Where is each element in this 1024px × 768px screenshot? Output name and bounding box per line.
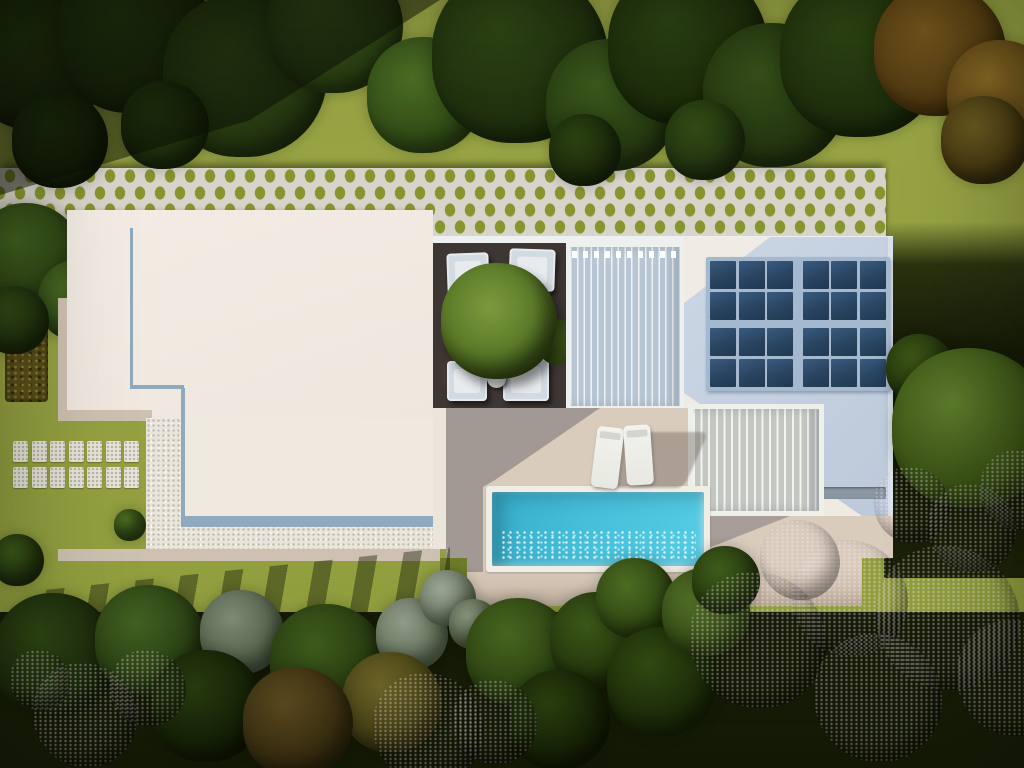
- pool-water: [492, 492, 704, 566]
- stepping-stone: [50, 441, 65, 462]
- solar-panel: [739, 359, 765, 387]
- tree: [665, 100, 745, 180]
- pool-sparkle: [500, 530, 696, 561]
- solar-panel: [860, 261, 886, 289]
- solar-panel: [767, 292, 793, 320]
- stepping-stone: [69, 441, 84, 462]
- solar-panel: [739, 292, 765, 320]
- gravel-band-horizontal: [146, 527, 436, 549]
- solar-panel: [739, 328, 765, 356]
- stepping-stone: [87, 467, 102, 488]
- flowering-tree: [110, 650, 186, 726]
- solar-panel: [767, 328, 793, 356]
- stepping-stone: [32, 441, 47, 462]
- solar-panel: [860, 328, 886, 356]
- left-edge-path: [58, 298, 67, 418]
- stepping-stone: [50, 467, 65, 488]
- stepping-stone: [69, 467, 84, 488]
- solar-panel: [831, 261, 857, 289]
- solar-panel: [803, 328, 829, 356]
- solar-panel: [831, 328, 857, 356]
- tree: [941, 96, 1024, 184]
- solar-panel: [739, 261, 765, 289]
- courtyard-west-wall: [433, 408, 446, 549]
- aerial-villa-scene: [0, 0, 1024, 768]
- solar-panel: [803, 261, 829, 289]
- solar-panel-array: [706, 257, 890, 391]
- roof-south-wall-line: [185, 516, 433, 527]
- solar-panel: [767, 359, 793, 387]
- main-roof-lower: [148, 418, 433, 516]
- solar-panel: [767, 261, 793, 289]
- stepping-stone: [13, 441, 28, 462]
- stepping-stone: [124, 441, 139, 462]
- solar-panel: [831, 292, 857, 320]
- stepping-stone: [106, 467, 121, 488]
- roof-joint-line-1: [130, 228, 133, 387]
- pergola-beam-tabs: [572, 251, 678, 258]
- sun-lounger: [623, 424, 654, 486]
- flowering-tree: [10, 650, 70, 710]
- main-roof-upper: [67, 210, 433, 418]
- solar-panel: [803, 359, 829, 387]
- solar-panel: [710, 359, 736, 387]
- stepping-stone: [106, 441, 121, 462]
- solar-panel: [860, 359, 886, 387]
- stepping-stone: [124, 467, 139, 488]
- solar-panel: [710, 292, 736, 320]
- stepping-stone: [13, 467, 28, 488]
- flowering-tree: [760, 520, 840, 600]
- solar-panel: [710, 328, 736, 356]
- stepping-stone-path: [13, 441, 145, 491]
- solar-panel: [710, 261, 736, 289]
- courtyard: [433, 243, 566, 408]
- solar-panel: [860, 292, 886, 320]
- courtyard-tree: [441, 263, 557, 379]
- roof-joint-line-3: [181, 388, 185, 527]
- flowering-tree: [453, 680, 537, 764]
- notch-path: [58, 410, 152, 421]
- slatted-pergola: [566, 243, 684, 410]
- roof-joint-line-2: [130, 385, 184, 389]
- solar-panel: [803, 292, 829, 320]
- swimming-pool: [486, 486, 710, 572]
- tree: [114, 509, 146, 541]
- solar-panel: [831, 359, 857, 387]
- stepping-stone: [87, 441, 102, 462]
- stepping-stone: [32, 467, 47, 488]
- tree: [549, 114, 621, 186]
